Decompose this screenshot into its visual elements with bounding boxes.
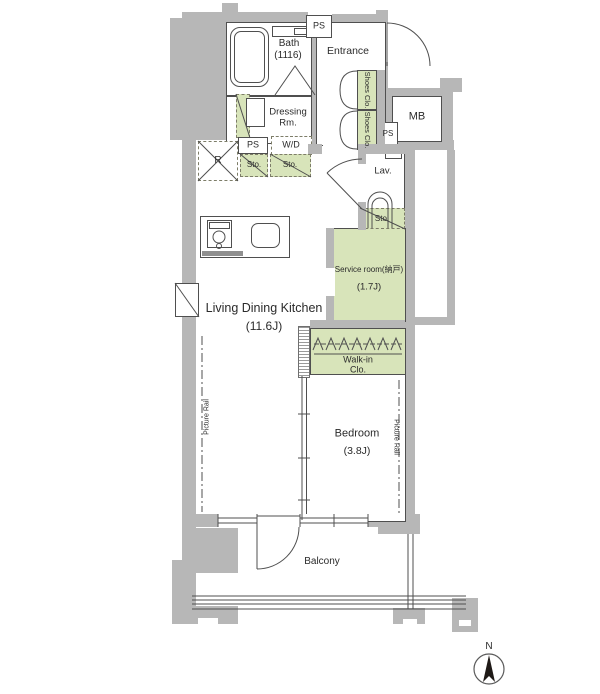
wall-topleft-block <box>170 18 232 140</box>
balcony-label: Balcony <box>304 557 340 567</box>
balcony-bar-notch <box>198 618 218 624</box>
picture-rail-left-label: Picture Rail <box>204 399 211 435</box>
bath-label: Bath <box>279 39 300 49</box>
compass-north-label: N <box>485 642 492 652</box>
dressing-label-2: Rm. <box>279 118 296 128</box>
wall-balcony-jog <box>196 528 238 573</box>
wall-unit-right <box>405 146 415 534</box>
counter-front-bar <box>202 251 243 256</box>
storage-2-label: Sto. <box>283 161 297 169</box>
window-band-bedroom <box>300 514 368 527</box>
opening-service-west <box>325 268 335 296</box>
ps-mb-label: PS <box>383 130 394 138</box>
dressing-label-1: Dressing <box>269 107 307 117</box>
window-band-ldk <box>218 514 257 527</box>
storage-3-label: Sto. <box>375 215 389 223</box>
kitchen-sink <box>251 223 280 248</box>
bedroom-size-label: (3.8J) <box>344 446 371 457</box>
wall-shoes-east <box>377 70 385 150</box>
stove-grill <box>209 222 230 229</box>
fridge-label: R <box>214 156 221 166</box>
bedroom-label: Bedroom <box>335 429 380 440</box>
shoes-closet-1-label: Shoes Clo. <box>363 72 371 109</box>
ps-mid-label: PS <box>247 141 259 150</box>
walkin-label-2: Clo. <box>350 366 366 375</box>
wall-walkin-north <box>310 320 405 328</box>
opening-entrance-south <box>323 143 357 153</box>
washbasin <box>246 98 265 127</box>
service-room <box>332 228 406 322</box>
wall-balcony-right-block <box>452 598 478 632</box>
ps-top-label: PS <box>313 22 325 31</box>
balcony-right-notch <box>459 620 471 626</box>
floor-plan: Bath (1116) Entrance Shoes Clo. Shoes Cl… <box>0 0 600 694</box>
wall-right-connector <box>415 317 455 325</box>
compass-needle-icon <box>483 655 495 682</box>
storage-1-label: Sto. <box>247 161 261 169</box>
shoes-closet-2-label: Shoes Clo. <box>363 112 371 149</box>
walkin-louver-panel <box>298 326 310 378</box>
balcony-right-fence <box>408 534 413 609</box>
compass <box>474 654 504 684</box>
service-room-size-label: (1.7J) <box>357 282 381 292</box>
walkin-label-1: Walk-in <box>343 356 373 365</box>
mb-label: MB <box>409 112 426 123</box>
ldk-west-vent-window <box>175 283 199 317</box>
picture-rail-right-label: Picture Rail <box>393 419 400 455</box>
wall-bottom-a <box>196 514 218 527</box>
wall-hall-west <box>308 144 322 154</box>
wd-label: W/D <box>282 141 300 150</box>
entrance-label: Entrance <box>327 46 369 57</box>
ldk-size-label: (11.6J) <box>246 320 282 332</box>
lav-label: Lav. <box>374 166 391 176</box>
wall-lav-west-bottom <box>358 200 366 230</box>
balcony-post-notch <box>403 619 417 624</box>
bath-size-label: (1116) <box>274 51 301 61</box>
opening-lav-west <box>356 164 366 202</box>
bathtub-inner <box>234 31 265 83</box>
service-room-label: Service room(納戸) <box>335 266 403 274</box>
ldk-label: Living Dining Kitchen <box>206 302 323 315</box>
compass-circle <box>474 654 504 684</box>
wall-top-tab <box>222 3 238 12</box>
wall-west <box>182 138 196 610</box>
wall-right-outer <box>447 150 455 322</box>
